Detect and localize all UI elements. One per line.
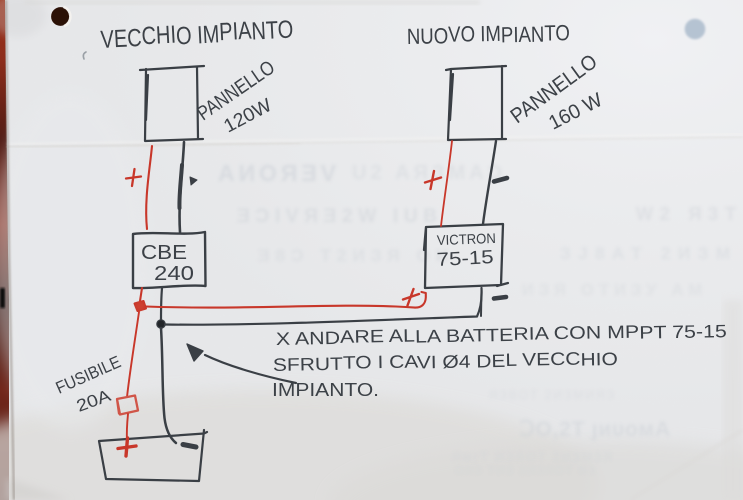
svg-text:VICTRON: VICTRON: [437, 230, 497, 248]
svg-text:75-15: 75-15: [436, 247, 494, 271]
svg-text:ОЯЗ ТИЗ 2ИЗЯОТ ЯЗ: ОЯЗ ТИЗ 2ИЗЯОТ ЯЗ: [455, 465, 595, 477]
svg-text:240: 240: [154, 263, 194, 285]
svg-text:ЯмꞅТ ИЗЯОТ 2ИЗМЗЯ: ЯмꞅТ ИЗЯОТ 2ИЗМЗЯ: [452, 450, 612, 464]
svg-text:ↃО,2Т ȷᴎᴜоᴍA: ↃО,2Т ȷᴎᴜоᴍA: [520, 418, 670, 441]
svg-text:CBE: CBE: [141, 242, 187, 264]
svg-text:NUOVO IMPIANTO: NUOVO IMPIANTO: [407, 20, 570, 49]
svg-text:IMPIANTO.: IMPIANTO.: [272, 380, 379, 400]
